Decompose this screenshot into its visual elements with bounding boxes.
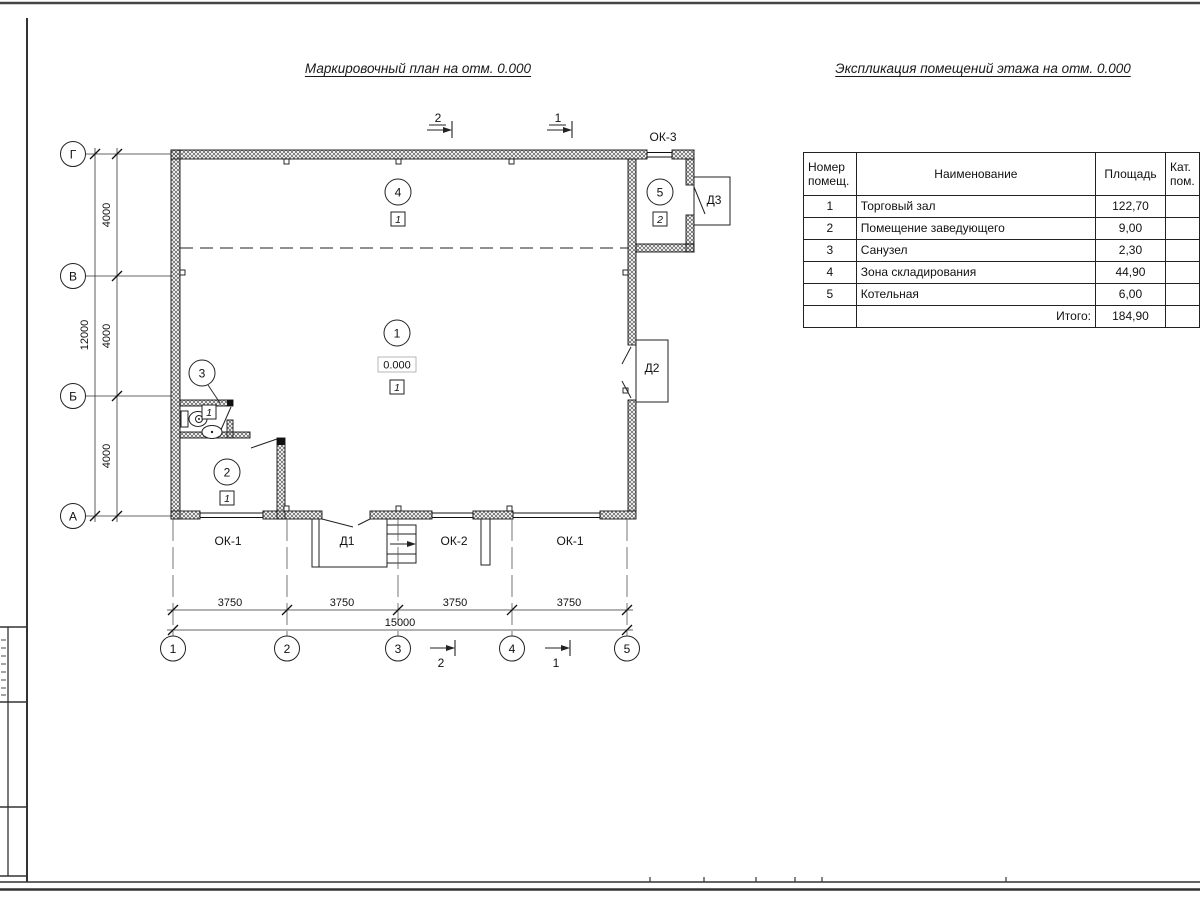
label-ok3: ОК-3 <box>650 130 677 144</box>
section-mark-2-top: 2 <box>427 111 452 138</box>
window-ok2 <box>432 513 473 518</box>
wall-top <box>672 150 694 159</box>
wall-left <box>171 150 180 519</box>
svg-text:1: 1 <box>553 656 560 670</box>
dim-4000: 4000 <box>101 203 113 227</box>
floor-type: 1 <box>395 214 401 226</box>
floor-type: 1 <box>224 493 230 505</box>
dim-4000: 4000 <box>101 324 113 348</box>
section-mark-1-top: 1 <box>547 111 572 138</box>
wall-bottom <box>370 511 432 519</box>
section-mark-2-bottom: 2 <box>430 640 455 670</box>
door-d3-leaf <box>694 187 705 214</box>
section-mark-1-bottom: 1 <box>545 640 570 670</box>
axis-bubble-v: В <box>61 264 86 289</box>
svg-text:4: 4 <box>509 642 516 656</box>
room-marker-3: 3 1 <box>189 360 220 419</box>
room-marker-4: 4 1 <box>385 179 411 226</box>
stamp-column-text <box>1 640 6 695</box>
room-5-number: 5 <box>657 186 664 200</box>
axis-bubble-2: 2 <box>275 636 300 661</box>
svg-text:1: 1 <box>170 642 177 656</box>
floor-type: 2 <box>656 214 663 226</box>
axis-bubble-1: 1 <box>161 636 186 661</box>
wall-bottom <box>600 511 636 519</box>
axis-bubble-5: 5 <box>615 636 640 661</box>
room-marker-5: 5 2 <box>647 179 673 226</box>
room-4-number: 4 <box>395 186 402 200</box>
wall-right <box>628 400 636 511</box>
label-d3: Д3 <box>707 193 722 207</box>
dim-3750: 3750 <box>218 597 242 609</box>
label-d1: Д1 <box>340 534 355 548</box>
wall-boiler-right <box>686 159 694 185</box>
svg-text:Г: Г <box>70 148 77 162</box>
wall-right <box>628 159 636 345</box>
label-ok1-left: ОК-1 <box>215 534 242 548</box>
opening-labels: ОК-1 Д1 ОК-2 ОК-1 ОК-3 Д3 Д2 <box>215 130 722 548</box>
label-d2: Д2 <box>645 361 660 375</box>
entrance-d1 <box>312 519 416 567</box>
walls <box>171 150 694 519</box>
vertical-dimensions: 4000 4000 4000 12000 <box>79 148 122 522</box>
wall-bottom <box>473 511 513 519</box>
svg-text:В: В <box>69 270 77 284</box>
section-marks: 2 1 2 1 <box>427 111 572 670</box>
svg-text:А: А <box>69 510 77 524</box>
dim-3750: 3750 <box>330 597 354 609</box>
dim-3750: 3750 <box>443 597 467 609</box>
axis-bubble-4: 4 <box>500 636 525 661</box>
axis-bubble-g: Г <box>61 142 86 167</box>
axis-bubble-3: 3 <box>386 636 411 661</box>
row-axes: Г В Б А <box>61 142 172 529</box>
room-2-number: 2 <box>224 466 231 480</box>
door-d1-leaf <box>322 519 353 527</box>
svg-text:5: 5 <box>624 642 631 656</box>
pier <box>481 519 490 565</box>
svg-text:2: 2 <box>435 111 442 125</box>
floor-type: 1 <box>206 407 212 419</box>
dim-3750: 3750 <box>557 597 581 609</box>
window-ok3 <box>647 153 672 158</box>
dim-15000: 15000 <box>385 617 416 629</box>
windows <box>200 153 672 518</box>
stairs-direction-arrow <box>407 541 416 547</box>
wall-wc-stub <box>227 420 233 438</box>
dim-4000: 4000 <box>101 444 113 468</box>
door-d1-leaf <box>358 519 370 525</box>
window-ok1-right <box>513 513 600 518</box>
sink-icon <box>202 426 222 439</box>
label-ok2: ОК-2 <box>441 534 468 548</box>
svg-text:Б: Б <box>69 390 77 404</box>
svg-text:1: 1 <box>555 111 562 125</box>
dim-12000: 12000 <box>79 320 91 351</box>
horizontal-dimensions: 3750 3750 3750 3750 15000 <box>167 597 633 635</box>
room-3-number: 3 <box>199 367 206 381</box>
wall-bottom <box>263 511 322 519</box>
room-marker-1: 1 0.000 1 <box>378 320 416 394</box>
svg-text:3: 3 <box>395 642 402 656</box>
door-d2-leaf <box>622 347 631 364</box>
room-marker-2: 2 1 <box>214 459 240 505</box>
drawing-sheet: 1 0.000 1 2 1 3 1 4 1 5 2 ОК-1 Д1 ОК-2 О… <box>0 0 1200 900</box>
svg-text:2: 2 <box>438 656 445 670</box>
axis-bubble-a: А <box>61 504 86 529</box>
room-1-number: 1 <box>394 327 401 341</box>
floor-type: 1 <box>394 382 400 394</box>
door-office-leaf <box>251 439 277 448</box>
window-ok1-left <box>200 513 263 518</box>
svg-text:2: 2 <box>284 642 291 656</box>
wall-boiler-bottom <box>636 244 694 252</box>
label-ok1-right: ОК-1 <box>557 534 584 548</box>
axis-bubble-b: Б <box>61 384 86 409</box>
level-mark: 0.000 <box>383 360 411 372</box>
wall-bottom <box>171 511 200 519</box>
wall-top <box>171 150 647 159</box>
